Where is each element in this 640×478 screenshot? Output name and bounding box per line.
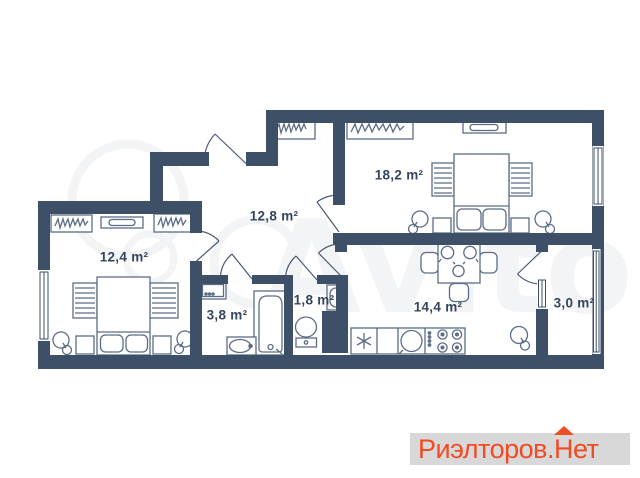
kitchen-counter-icon bbox=[351, 328, 465, 354]
sink-icon bbox=[227, 337, 256, 355]
wardrobe-icon bbox=[347, 121, 413, 139]
bedroom-window bbox=[39, 270, 50, 341]
living-room-window bbox=[593, 146, 604, 206]
room-label-kitchen: 14,4 m² bbox=[414, 300, 463, 315]
logo-text-suffix: Нет bbox=[554, 434, 598, 464]
dresser-icon bbox=[463, 122, 506, 133]
logo-house-roof-icon: Нет bbox=[554, 434, 598, 464]
dresser-icon bbox=[101, 217, 143, 228]
wardrobe-icon bbox=[51, 215, 92, 232]
logo-text-prefix: Риэлторов. bbox=[418, 434, 554, 464]
room-label-balcony: 3,0 m² bbox=[554, 296, 595, 311]
floor-plan-image: Avito bbox=[0, 0, 640, 478]
washing-machine-icon bbox=[200, 282, 226, 299]
wardrobe-icon bbox=[154, 214, 193, 232]
room-label-bathroom: 3,8 m² bbox=[207, 308, 248, 323]
bathtub-icon bbox=[254, 291, 287, 355]
room-label-living-room: 18,2 m² bbox=[375, 168, 424, 183]
room-label-hallway: 12,8 m² bbox=[250, 209, 299, 224]
room-label-wc: 1,8 m² bbox=[294, 293, 335, 308]
rieltorov-net-logo: Риэлторов.Нет bbox=[410, 433, 630, 465]
balcony-door-sidelight bbox=[537, 278, 547, 309]
vent-shaft bbox=[322, 311, 348, 353]
toilet-icon bbox=[296, 317, 317, 347]
room-label-bedroom: 12,4 m² bbox=[100, 250, 149, 265]
floor-plan-drawing: Avito bbox=[0, 0, 640, 478]
entrance-door-arc bbox=[204, 134, 246, 164]
